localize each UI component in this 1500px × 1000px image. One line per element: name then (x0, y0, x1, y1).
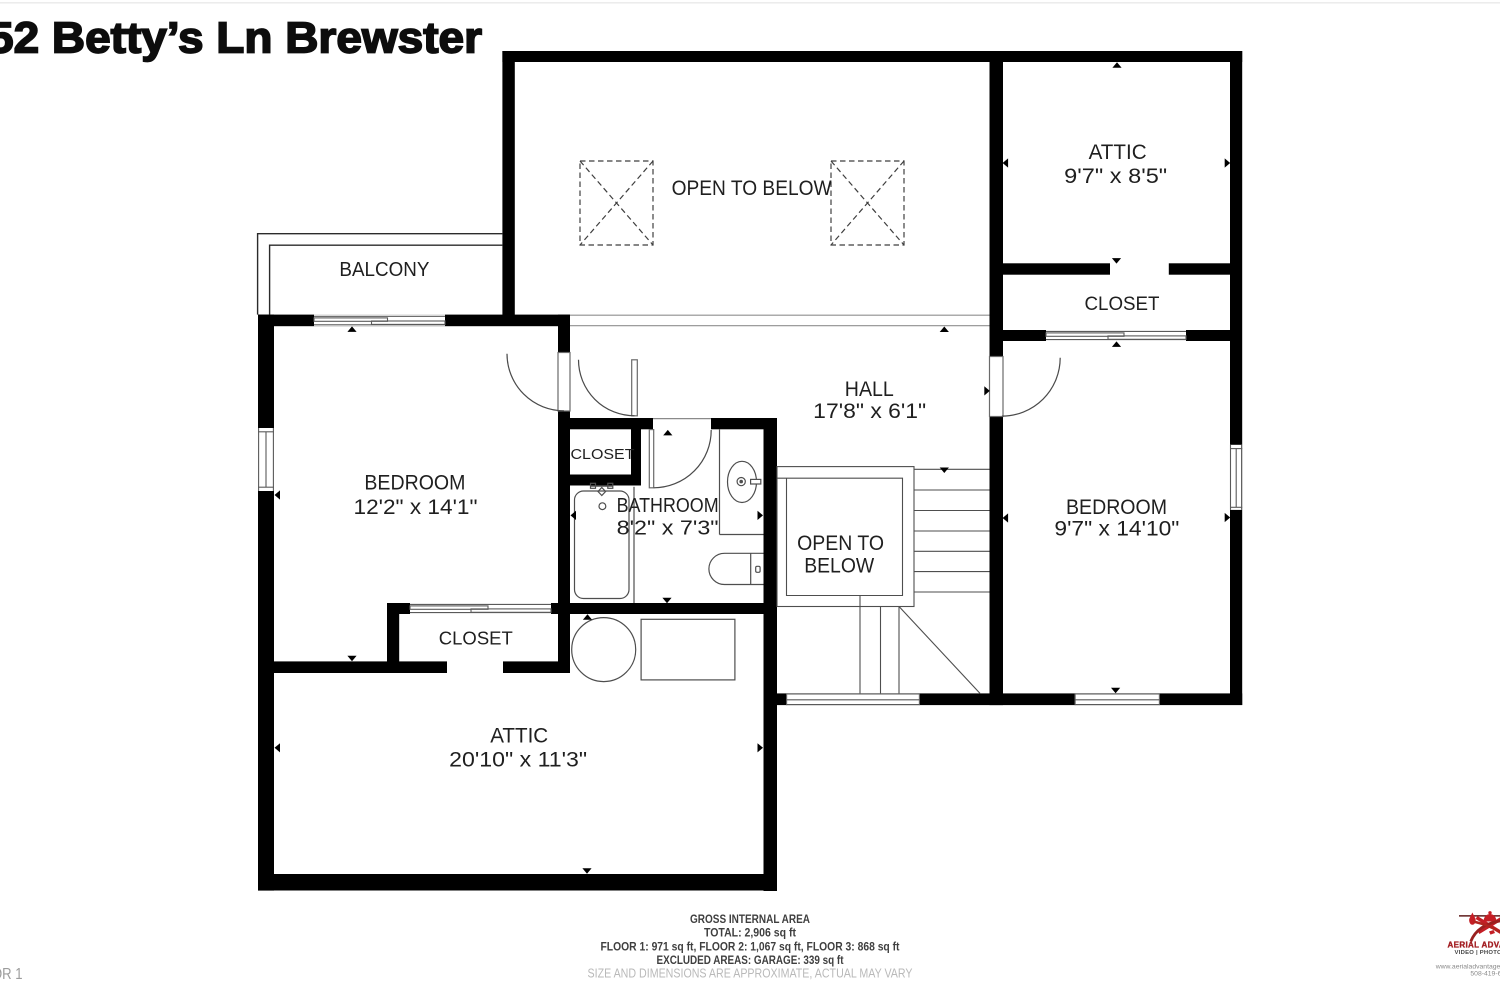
svg-text:TOTAL: 2,906 sq ft: TOTAL: 2,906 sq ft (704, 926, 796, 940)
svg-text:GROSS INTERNAL AREA: GROSS INTERNAL AREA (690, 912, 810, 926)
svg-text:ATTIC: ATTIC (1089, 141, 1147, 164)
svg-text:FLOOR 1: 971 sq ft, FLOOR 2: 1: FLOOR 1: 971 sq ft, FLOOR 2: 1,067 sq ft… (601, 939, 900, 953)
svg-text:9'7" x 14'10": 9'7" x 14'10" (1054, 518, 1179, 541)
svg-text:20'10" x 11'3": 20'10" x 11'3" (449, 749, 587, 772)
svg-text:SIZE AND DIMENSIONS ARE APPROX: SIZE AND DIMENSIONS ARE APPROXIMATE, ACT… (588, 966, 913, 981)
svg-text:BEDROOM: BEDROOM (364, 471, 465, 494)
svg-text:OPEN TO BELOW: OPEN TO BELOW (672, 177, 832, 200)
svg-text:BEDROOM: BEDROOM (1066, 496, 1167, 519)
svg-text:AERIAL ADVANTAGE: AERIAL ADVANTAGE (1448, 941, 1500, 950)
svg-text:CLOSET: CLOSET (439, 628, 513, 648)
svg-text:CLOSET: CLOSET (571, 447, 635, 463)
svg-text:BATHROOM: BATHROOM (617, 495, 719, 517)
svg-text:8'2" x 7'3": 8'2" x 7'3" (617, 518, 719, 540)
svg-text:VIDEO | PHOTOGRAPHY: VIDEO | PHOTOGRAPHY (1455, 950, 1500, 956)
svg-text:BALCONY: BALCONY (339, 258, 429, 281)
svg-text:www.aerialadvantage.net: www.aerialadvantage.net (1435, 963, 1500, 970)
svg-text:HALL: HALL (845, 378, 894, 401)
svg-text:CLOSET: CLOSET (1085, 294, 1160, 315)
svg-text:9'7" x 8'5": 9'7" x 8'5" (1064, 165, 1167, 188)
svg-text:FLOOR 1: FLOOR 1 (0, 966, 23, 983)
svg-text:52 Betty’s Ln Brewster: 52 Betty’s Ln Brewster (0, 13, 482, 62)
svg-text:BELOW: BELOW (804, 554, 874, 577)
svg-text:ATTIC: ATTIC (490, 725, 548, 748)
svg-text:OPEN TO: OPEN TO (797, 532, 884, 555)
svg-text:12'2" x 14'1": 12'2" x 14'1" (354, 496, 478, 519)
svg-text:508-419-6175: 508-419-6175 (1470, 970, 1500, 977)
svg-text:17'8" x 6'1": 17'8" x 6'1" (813, 400, 926, 423)
